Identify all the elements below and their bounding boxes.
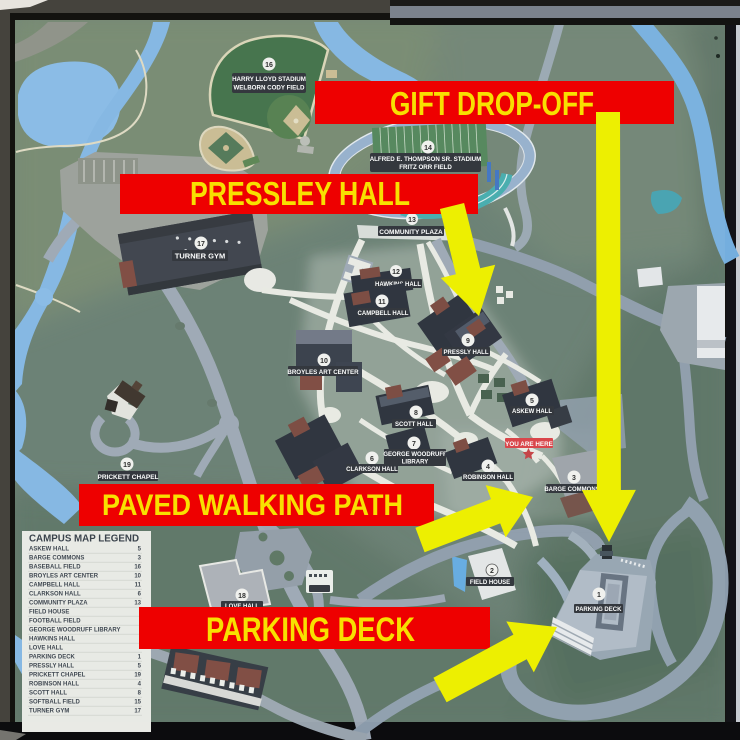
- svg-text:PRESSLEY HALL: PRESSLEY HALL: [190, 175, 410, 212]
- svg-text:PAVED WALKING PATH: PAVED WALKING PATH: [102, 489, 403, 522]
- svg-text:GIFT DROP-OFF: GIFT DROP-OFF: [390, 85, 594, 122]
- svg-text:PARKING DECK: PARKING DECK: [206, 611, 415, 649]
